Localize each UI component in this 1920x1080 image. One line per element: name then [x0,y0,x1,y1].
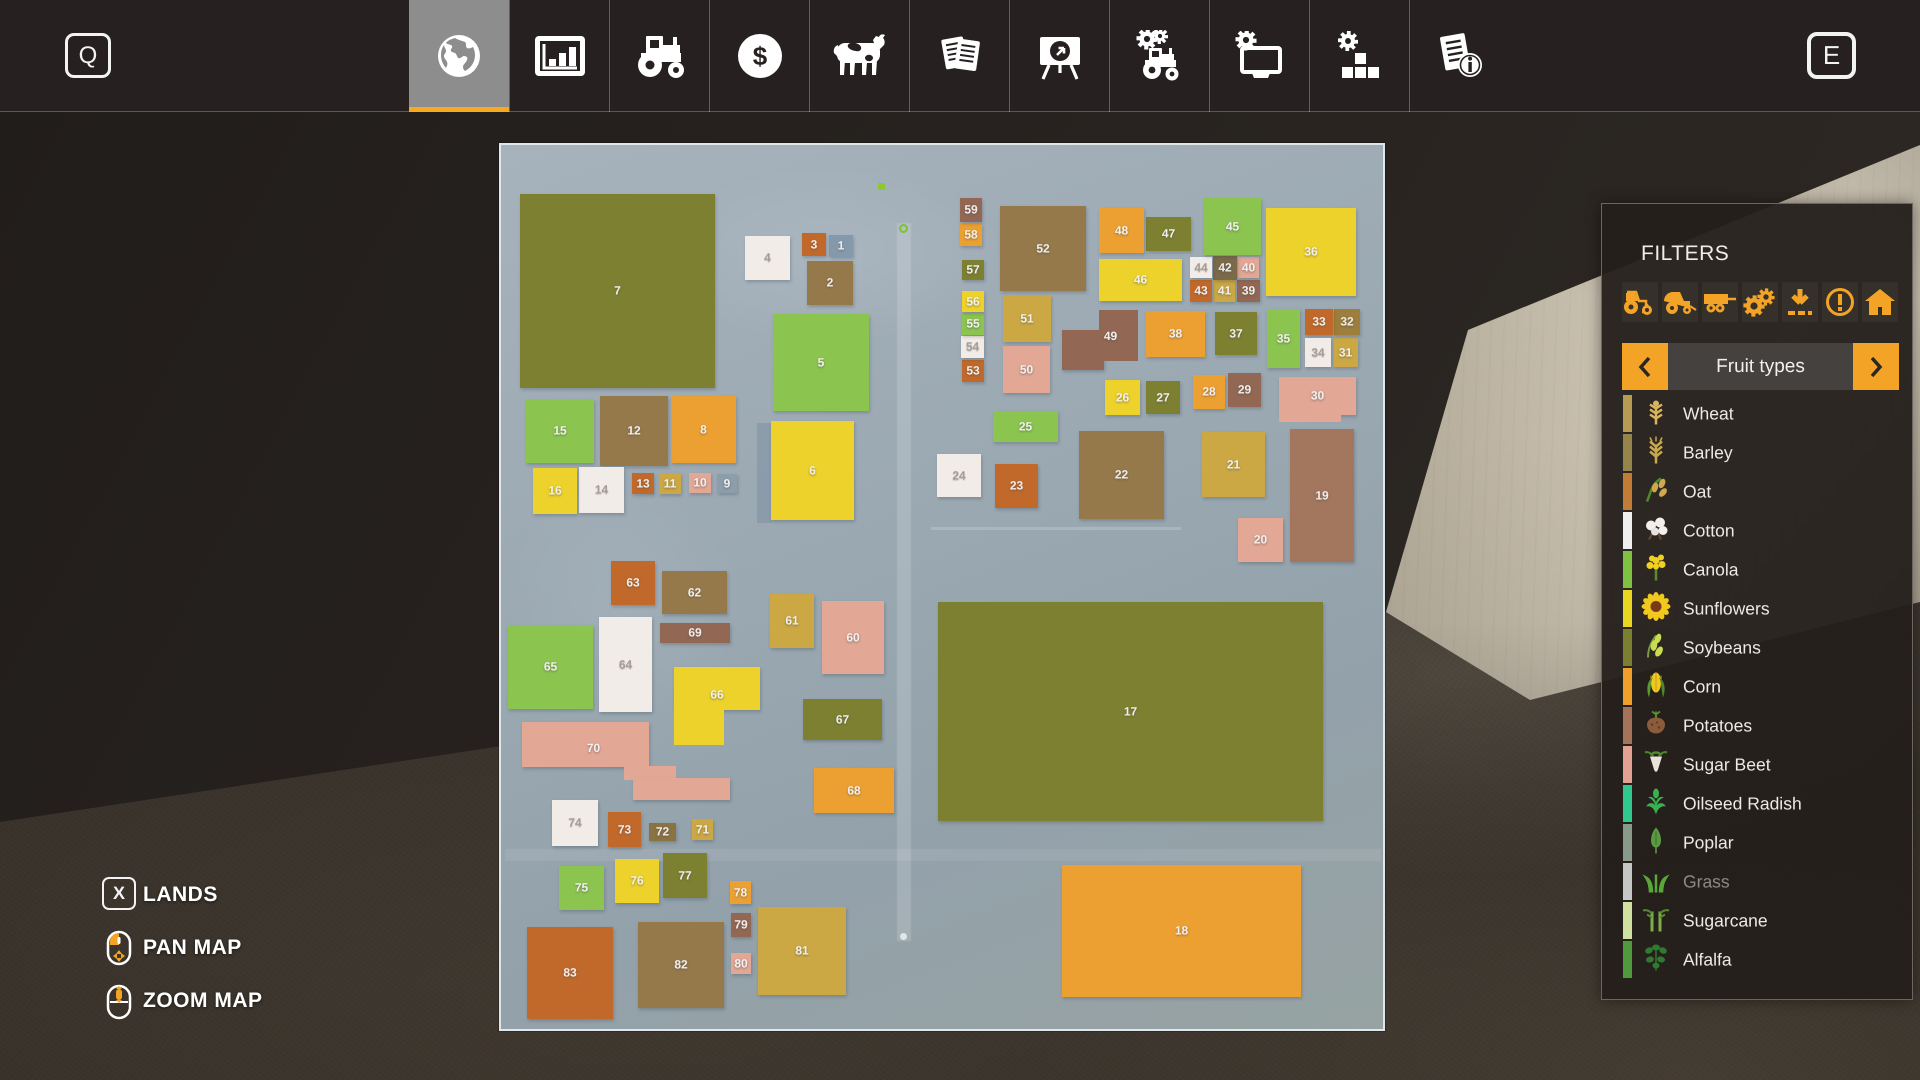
svg-text:$: $ [752,41,767,71]
